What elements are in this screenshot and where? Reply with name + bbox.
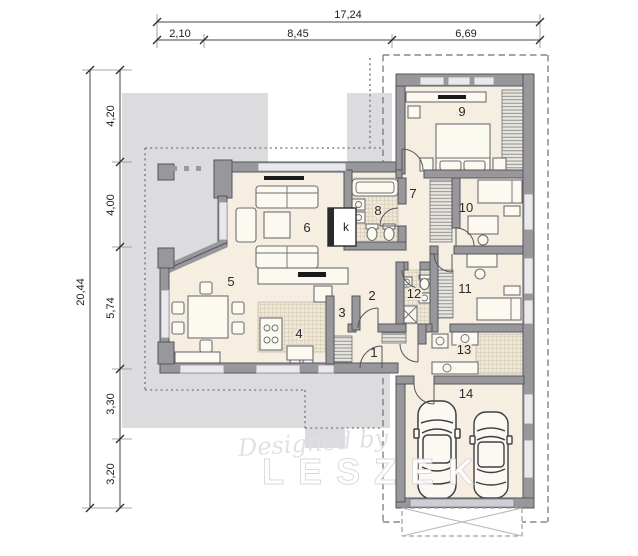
dim-left-seg5: 3,20 <box>105 463 117 484</box>
room13-floor-hatch <box>476 334 523 374</box>
room-label-2: 2 <box>368 288 375 303</box>
dim-left-seg2: 4,00 <box>105 194 117 215</box>
dim-top-seg1: 2,10 <box>169 28 190 40</box>
dim-left-total: 20,44 <box>75 278 87 306</box>
nightstand-icon <box>493 158 506 171</box>
room-label-13: 13 <box>457 342 471 357</box>
closet1-hatch <box>382 333 406 343</box>
kitchen-counter-icon <box>260 318 282 350</box>
desk-icon <box>467 253 497 267</box>
washer-icon <box>432 334 448 348</box>
cooktop-icon <box>298 272 326 277</box>
floor-plan-canvas: k 1 2 3 4 <box>0 0 638 556</box>
dim-top-total: 17,24 <box>334 9 362 21</box>
wardrobe7-hatch <box>430 180 452 242</box>
dim-top-seg3: 6,69 <box>455 28 476 40</box>
fireplace-label: k <box>343 220 350 234</box>
kitchen-table-icon <box>287 346 313 360</box>
coffee-table-icon <box>264 212 290 238</box>
room-label-6: 6 <box>303 220 310 235</box>
sideboard-icon <box>175 352 220 363</box>
dim-left-seg1: 4,20 <box>105 105 117 126</box>
bed-icon <box>477 298 521 320</box>
room-label-7: 7 <box>409 186 416 201</box>
room-label-5: 5 <box>227 274 234 289</box>
room-label-12: 12 <box>407 286 421 301</box>
counter-icon <box>432 362 478 374</box>
garage-door <box>410 499 514 507</box>
watermark-name: LESZEK <box>262 451 488 492</box>
tv-icon <box>264 176 304 180</box>
fireplace: k <box>328 208 356 246</box>
dim-top-seg2: 8,45 <box>287 28 308 40</box>
shelf-icon <box>504 286 520 295</box>
bed-icon <box>478 180 522 203</box>
wardrobe11-hatch <box>438 270 453 318</box>
chair-icon <box>475 269 485 279</box>
dining-table-icon <box>188 296 228 338</box>
room-label-9: 9 <box>458 104 465 119</box>
chair-icon <box>478 235 488 245</box>
dim-left-seg3: 5,74 <box>105 297 117 318</box>
shelf-icon <box>504 206 520 216</box>
desk-icon <box>468 216 498 234</box>
toilet-icon <box>420 279 429 290</box>
floor-plan-page: k 1 2 3 4 <box>0 0 638 556</box>
room-label-4: 4 <box>295 326 302 341</box>
room-label-3: 3 <box>338 305 345 320</box>
driveway-apron <box>402 508 522 536</box>
armchair-icon <box>236 208 256 242</box>
room-label-10: 10 <box>459 200 473 215</box>
room-label-11: 11 <box>458 281 472 296</box>
room-label-14: 14 <box>459 386 473 401</box>
room-label-8: 8 <box>374 203 381 218</box>
terrace-upper-pad <box>347 93 392 167</box>
toilet-icon <box>366 224 378 241</box>
dim-left-seg4: 3,30 <box>105 393 117 414</box>
room-label-1: 1 <box>370 345 377 360</box>
